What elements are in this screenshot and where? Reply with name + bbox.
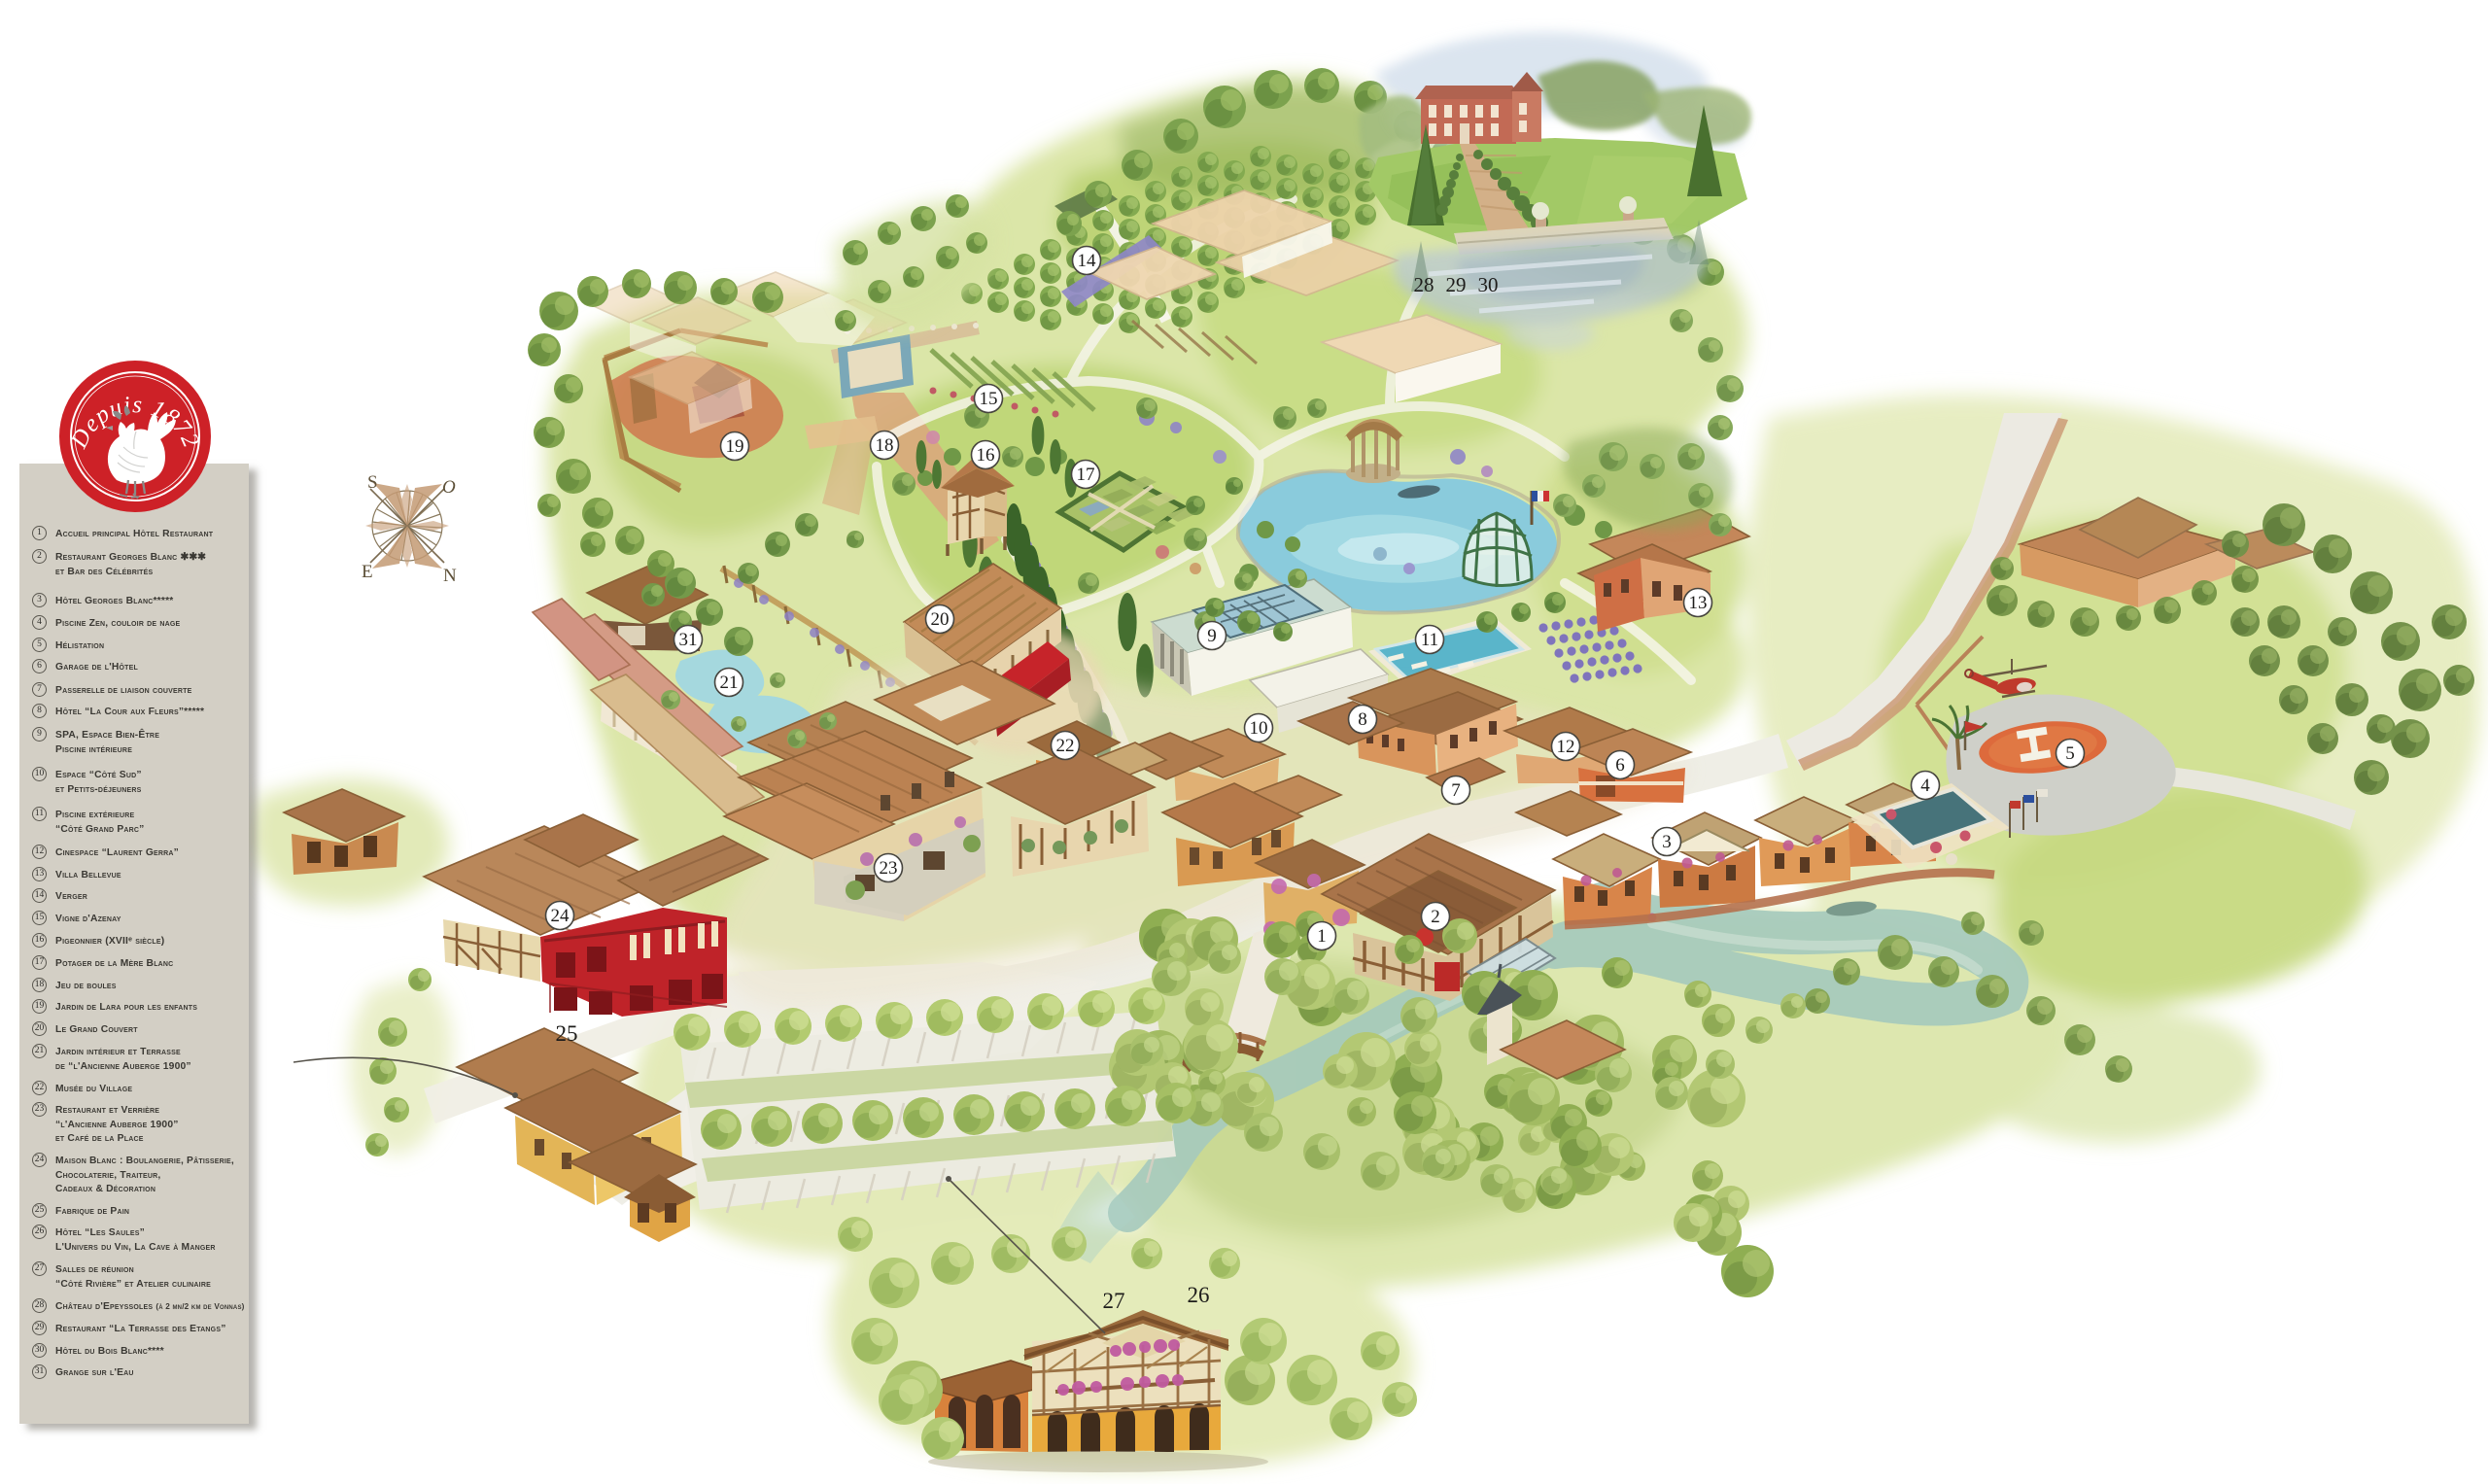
svg-text:12: 12 (1557, 737, 1575, 757)
svg-text:17: 17 (1077, 465, 1095, 485)
svg-text:E: E (362, 562, 373, 582)
svg-text:11: 11 (1421, 630, 1438, 650)
svg-text:3: 3 (1662, 832, 1672, 852)
svg-text:5: 5 (2065, 743, 2075, 764)
svg-text:6: 6 (1615, 755, 1625, 776)
svg-text:20: 20 (931, 609, 950, 630)
svg-text:26: 26 (1188, 1283, 1210, 1307)
svg-text:10: 10 (1250, 718, 1268, 739)
svg-text:9: 9 (1207, 626, 1217, 646)
svg-text:27: 27 (1103, 1289, 1125, 1313)
svg-text:14: 14 (1078, 251, 1097, 271)
svg-text:25: 25 (556, 1021, 578, 1046)
svg-text:15: 15 (980, 389, 998, 409)
svg-text:13: 13 (1689, 593, 1708, 613)
svg-text:1: 1 (1317, 926, 1327, 947)
svg-text:2: 2 (1431, 907, 1440, 927)
svg-text:18: 18 (876, 435, 894, 456)
svg-text:N: N (443, 566, 457, 586)
svg-text:16: 16 (977, 445, 995, 466)
svg-text:22: 22 (1056, 736, 1075, 756)
svg-text:19: 19 (726, 436, 744, 457)
svg-text:4: 4 (1920, 776, 1930, 796)
svg-text:29: 29 (1446, 273, 1467, 296)
svg-text:S: S (367, 472, 378, 493)
svg-text:O: O (442, 477, 456, 498)
svg-text:30: 30 (1478, 273, 1499, 296)
svg-text:28: 28 (1414, 273, 1434, 296)
svg-text:23: 23 (880, 858, 898, 879)
svg-text:21: 21 (720, 673, 739, 693)
svg-text:7: 7 (1451, 780, 1461, 801)
svg-text:8: 8 (1358, 709, 1367, 730)
svg-text:31: 31 (679, 630, 698, 650)
svg-text:24: 24 (551, 906, 570, 926)
